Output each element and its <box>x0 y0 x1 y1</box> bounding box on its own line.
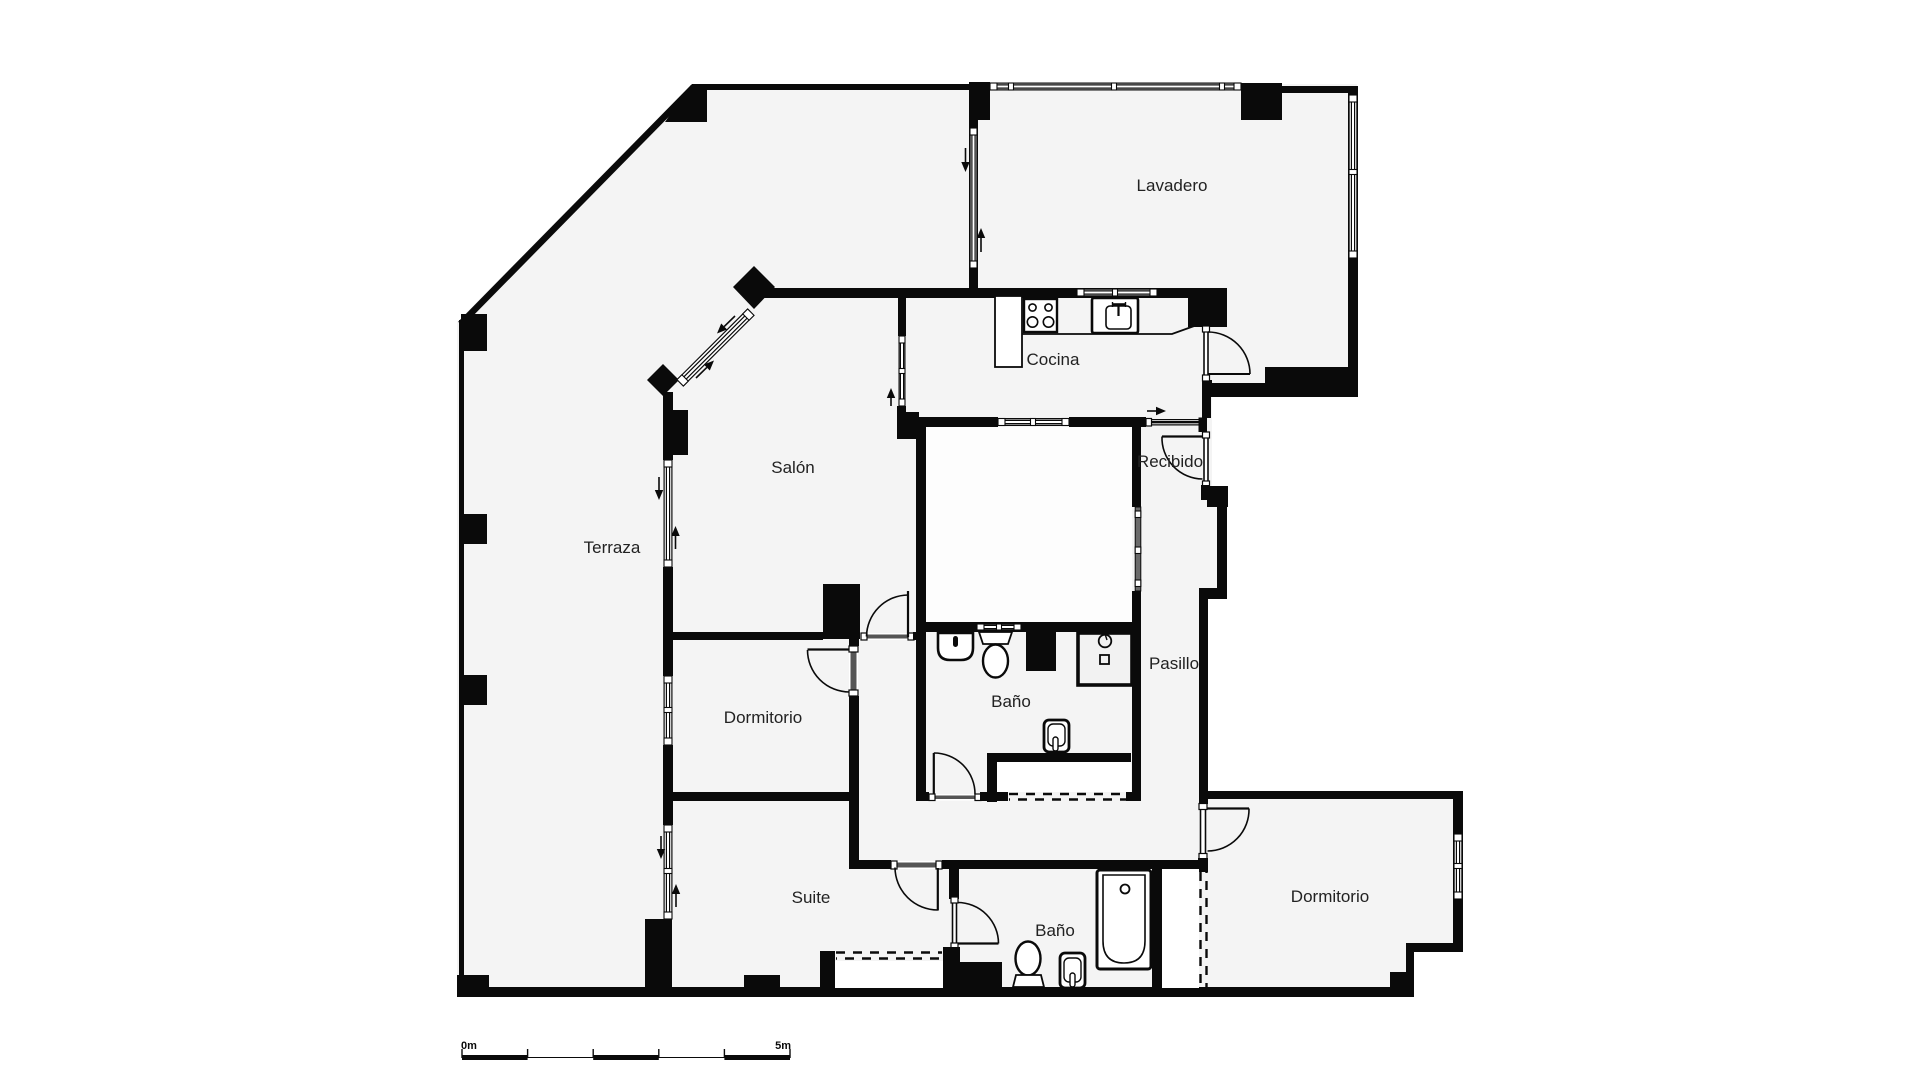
svg-text:Baño: Baño <box>991 692 1031 711</box>
svg-text:Terraza: Terraza <box>584 538 641 557</box>
svg-text:Baño: Baño <box>1035 921 1075 940</box>
svg-text:5m: 5m <box>775 1040 791 1052</box>
svg-text:Dormitorio: Dormitorio <box>724 708 802 727</box>
svg-text:0m: 0m <box>461 1040 477 1052</box>
svg-text:Lavadero: Lavadero <box>1137 176 1208 195</box>
svg-text:Dormitorio: Dormitorio <box>1291 887 1369 906</box>
svg-text:Pasillo: Pasillo <box>1149 654 1199 673</box>
svg-text:Salón: Salón <box>771 458 814 477</box>
svg-text:Recibido: Recibido <box>1137 452 1203 471</box>
svg-text:Suite: Suite <box>792 888 831 907</box>
svg-text:Cocina: Cocina <box>1027 350 1080 369</box>
